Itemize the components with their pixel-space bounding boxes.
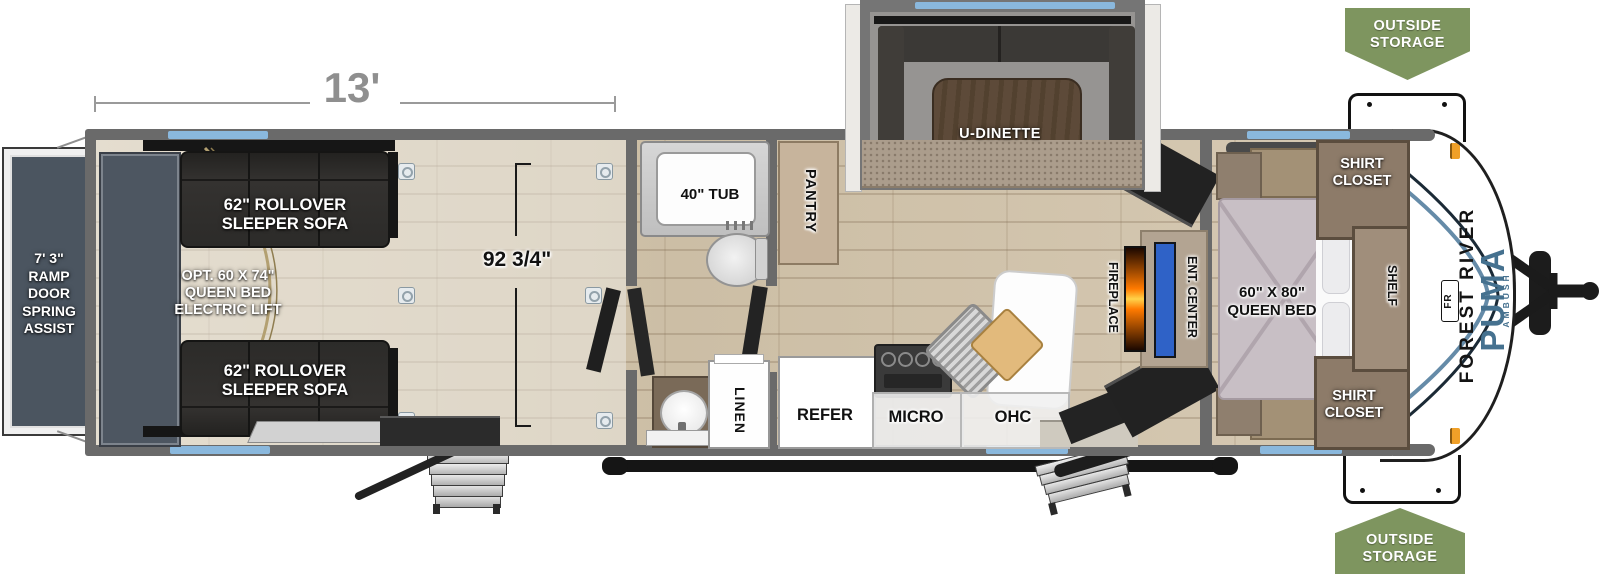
queen-bed-label: 60" X 80" QUEEN BED [1206,284,1338,319]
ent-center-label: ENT. CENTER [1179,248,1199,346]
brand-series: AMBUSH [1501,260,1513,340]
bolt-icon [1360,488,1365,493]
awning-end-cap-right [1212,457,1238,475]
outside-storage-banner-top-label: OUTSIDE STORAGE [1345,18,1470,52]
fireplace-insert [1124,246,1146,352]
window-bottom-garage [170,446,270,454]
shirt-closet-bottom-label: SHIRT CLOSET [1306,388,1402,422]
tie-down-ring-icon [585,287,602,304]
dim-width-tick-top [515,163,531,165]
dim-width-label: 92 3/4" [458,248,576,273]
marker-light-icon [1450,143,1460,159]
awning-end-cap-left [602,457,628,475]
floorplan-canvas: 13' 7' 3" RAMP DOOR SPRING ASSIST [0,0,1600,577]
dim-width-line-top [515,164,517,236]
tub-label: 40" TUB [668,186,752,204]
bolt-icon [1436,488,1441,493]
awning-bar [610,460,1238,472]
entry-door-landing [380,416,500,446]
bath-wall-left-bottom [626,370,637,445]
bath-step-shelf [646,430,714,446]
dim-13ft-line-right [400,102,615,104]
outside-storage-compartment-bottom [1343,455,1461,504]
dim-13ft-line-left [95,102,310,104]
tie-down-ring-icon [596,412,613,429]
dim-13ft-tick-left [94,96,96,112]
outside-storage-banner-bottom-label: OUTSIDE STORAGE [1335,532,1465,566]
outside-storage-banner-bottom: OUTSIDE STORAGE [1335,508,1465,574]
dim-13ft-tick-right [614,96,616,112]
dim-width-line-bottom [515,288,517,427]
burner-icon [881,352,896,367]
window-top-bedroom [1247,131,1350,139]
outside-storage-banner-top: OUTSIDE STORAGE [1345,8,1470,80]
dim-13ft-label: 13' [302,64,402,112]
fireplace-label: FIREPLACE [1100,254,1120,340]
pantry-label: PANTRY [796,166,818,236]
window-dinette-slide [915,2,1115,9]
dinette-bench-back [878,26,1127,62]
burner-icon [898,352,913,367]
linen-label: LINEN [726,382,748,438]
dinette-edge-bar [874,16,1131,24]
opt-queen-bed-label: OPT. 60 X 74" QUEEN BED ELECTRIC LIFT [138,268,318,319]
refer-label: REFER [778,406,872,425]
tv-screen [1154,242,1176,358]
micro-label: MICRO [872,408,960,427]
marker-light-icon [1450,428,1460,444]
bath-wall-left-top [626,140,637,286]
sofa-top-label: 62" ROLLOVER SLEEPER SOFA [180,196,390,235]
sofa-bottom-label: 62" ROLLOVER SLEEPER SOFA [180,362,390,401]
toilet-tank [755,238,768,280]
bolt-icon [1367,102,1372,107]
tie-down-ring-icon [596,163,613,180]
dim-width-tick-bottom [515,425,531,427]
dinette-slide-flange-right [1144,4,1161,192]
refrigerator [778,356,876,449]
window-top-garage [168,131,268,139]
dinette-entry-carpet [862,140,1142,188]
ramp-door-label: 7' 3" RAMP DOOR SPRING ASSIST [6,250,92,338]
shelf-label: SHELF [1381,260,1399,310]
shirt-closet-top-label: SHIRT CLOSET [1320,156,1404,190]
hitch-a-frame [1503,243,1600,343]
bolt-icon [1442,102,1447,107]
nightstand-top [1216,152,1262,200]
u-dinette-label: U-DINETTE [950,126,1050,143]
